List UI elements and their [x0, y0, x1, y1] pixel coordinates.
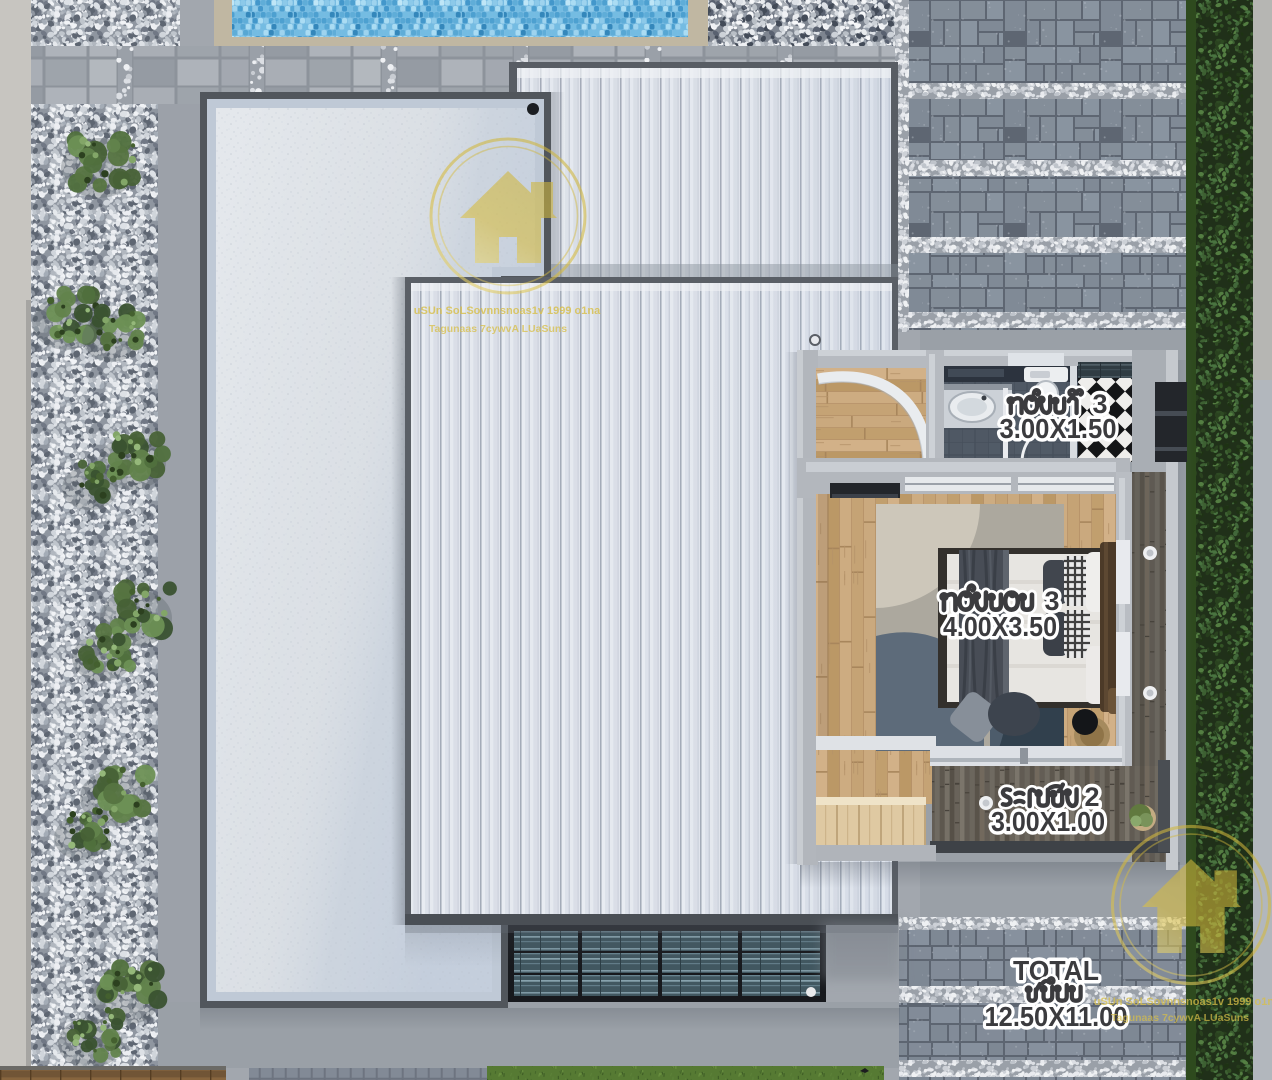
svg-text:4.00X3.50: 4.00X3.50: [943, 611, 1057, 642]
svg-text:uSUn SoLSovnnsnoas1v 1999 o1na: uSUn SoLSovnnsnoas1v 1999 o1na: [414, 305, 601, 317]
svg-text:uSUn SoLSovnnsnoas1v 1999 o1na: uSUn SoLSovnnsnoas1v 1999 o1na: [1094, 996, 1272, 1008]
svg-text:Tagunaas 7cywvA LUaSuns: Tagunaas 7cywvA LUaSuns: [1111, 1012, 1249, 1024]
svg-text:3.00X1.50: 3.00X1.50: [1000, 413, 1117, 444]
svg-text:Tagunaas 7cywvA LUaSuns: Tagunaas 7cywvA LUaSuns: [429, 323, 567, 335]
svg-text:3.00X1.00: 3.00X1.00: [991, 806, 1105, 837]
